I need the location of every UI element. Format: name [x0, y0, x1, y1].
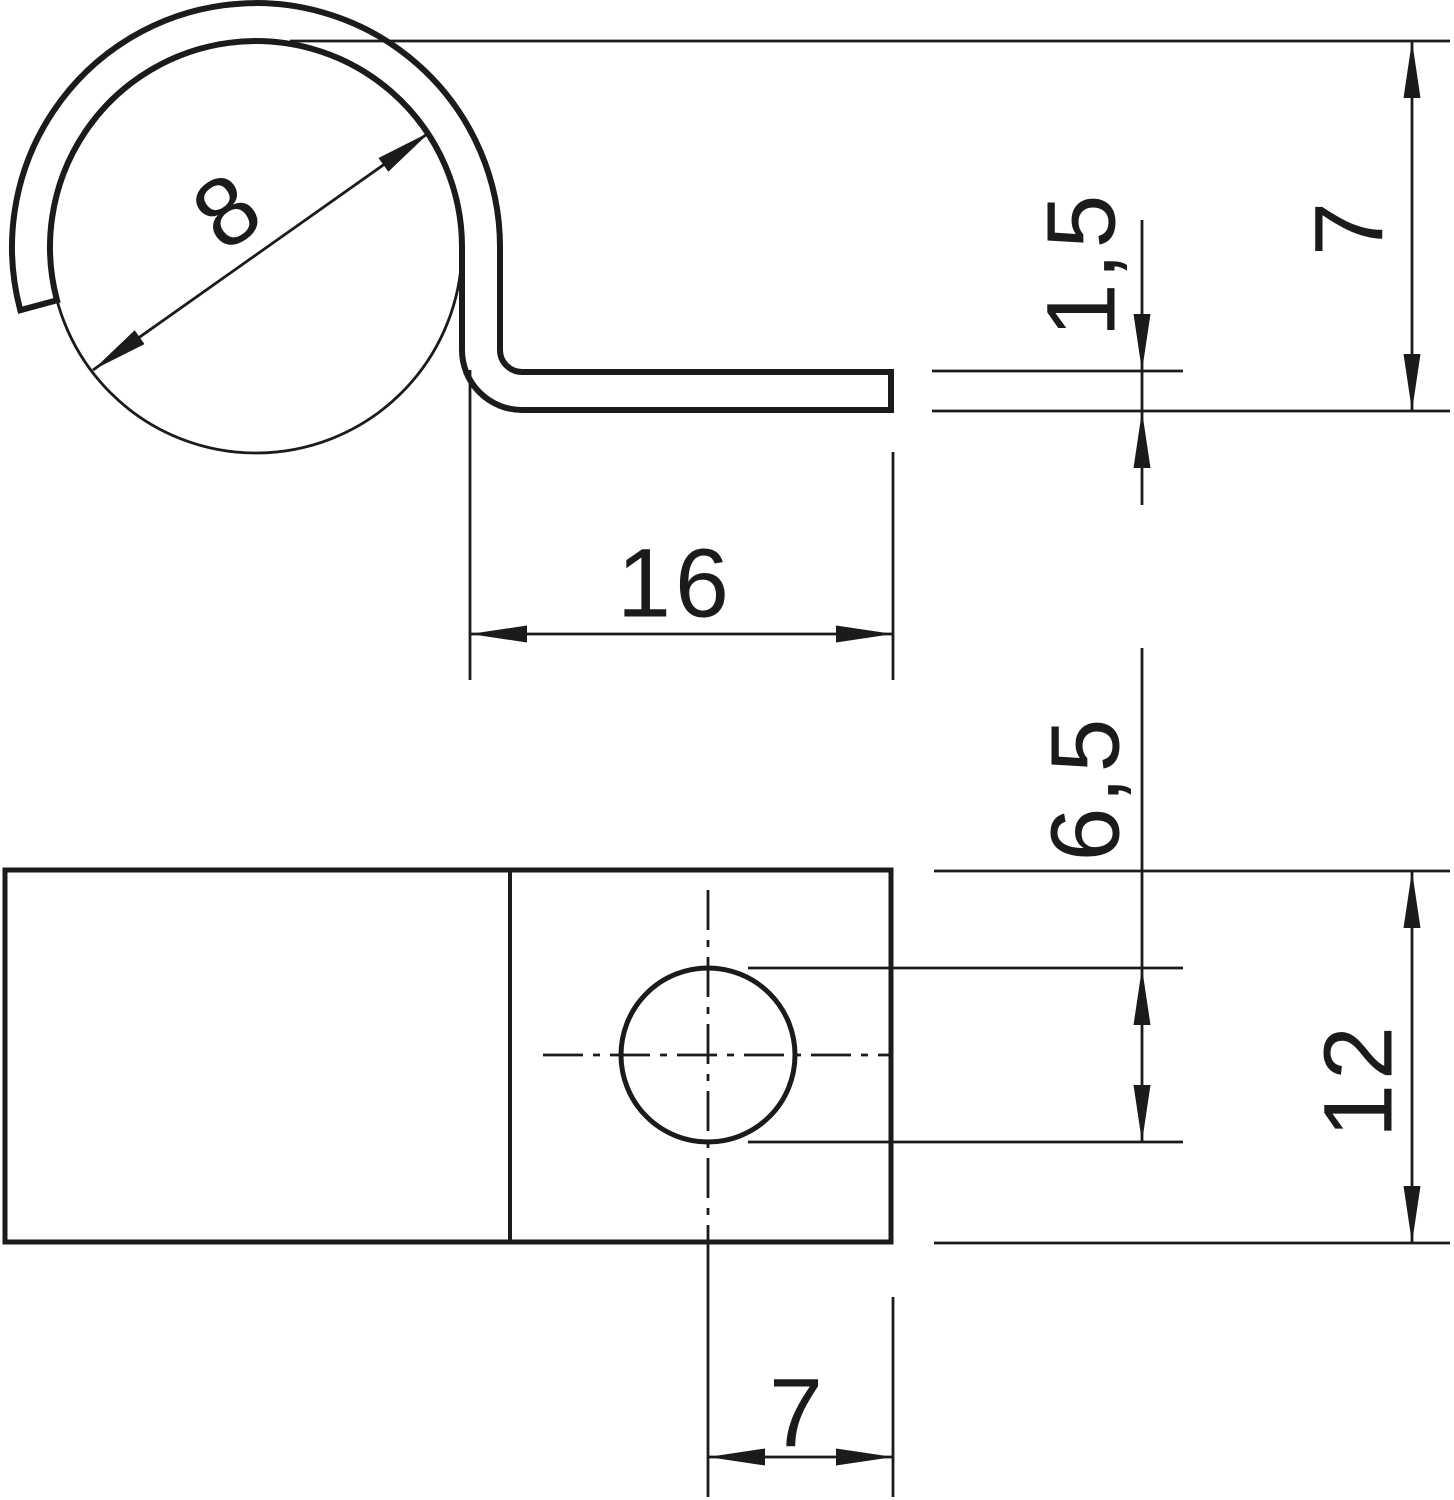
arrowhead [1404, 354, 1421, 411]
dim-label-width: 12 [1304, 1022, 1413, 1138]
dim-label-tab-length: 16 [617, 529, 733, 638]
technical-drawing: 8 1,5 7 16 6,5 12 7 [0, 0, 1454, 1500]
arrowhead [1404, 1186, 1421, 1243]
arrowhead [1404, 41, 1421, 98]
arrowhead [836, 1449, 893, 1466]
arrowhead [1134, 411, 1151, 468]
arrowhead [1134, 1085, 1151, 1142]
arrowhead [836, 626, 893, 643]
dim-label-hole-edge-offset: 7 [769, 1359, 827, 1468]
arrowhead [1134, 968, 1151, 1025]
arrowhead [93, 330, 145, 370]
arrowhead [470, 626, 527, 643]
dim-label-material-thickness: 1,5 [1027, 191, 1136, 338]
dim-label-bore-diameter: 8 [173, 149, 283, 272]
drawing-canvas: 8 1,5 7 16 6,5 12 7 [0, 0, 1454, 1500]
dim-label-height: 7 [1295, 198, 1404, 256]
arrowhead [1134, 314, 1151, 371]
arrowhead [379, 132, 431, 172]
arrowhead [708, 1449, 765, 1466]
dim-label-hole-diameter: 6,5 [1031, 715, 1140, 862]
arrowhead [1404, 871, 1421, 928]
clip-profile-outline [12, 3, 891, 410]
